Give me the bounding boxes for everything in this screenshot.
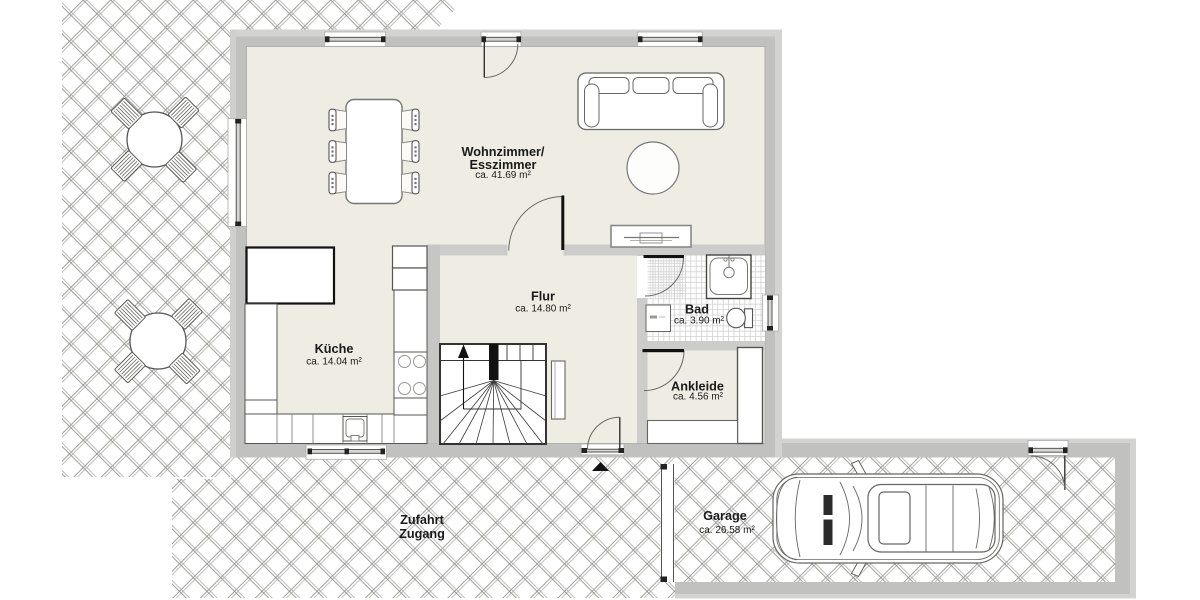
- svg-text:Küche: Küche: [315, 342, 354, 356]
- svg-text:ca. 41.69 m²: ca. 41.69 m²: [475, 170, 531, 181]
- svg-text:ca. 3.90 m²: ca. 3.90 m²: [674, 315, 725, 326]
- svg-text:ca. 26.58 m²: ca. 26.58 m²: [699, 525, 755, 536]
- svg-text:Garage: Garage: [703, 509, 747, 523]
- svg-text:ca. 14.04 m²: ca. 14.04 m²: [306, 356, 362, 367]
- svg-text:Zufahrt: Zufahrt: [400, 513, 444, 527]
- svg-text:ca. 4.56 m²: ca. 4.56 m²: [673, 391, 724, 402]
- svg-text:Flur: Flur: [531, 290, 555, 304]
- svg-text:Wohnzimmer/: Wohnzimmer/: [462, 145, 545, 159]
- svg-text:ca. 14.80 m²: ca. 14.80 m²: [515, 304, 571, 315]
- svg-text:Zugang: Zugang: [399, 527, 445, 541]
